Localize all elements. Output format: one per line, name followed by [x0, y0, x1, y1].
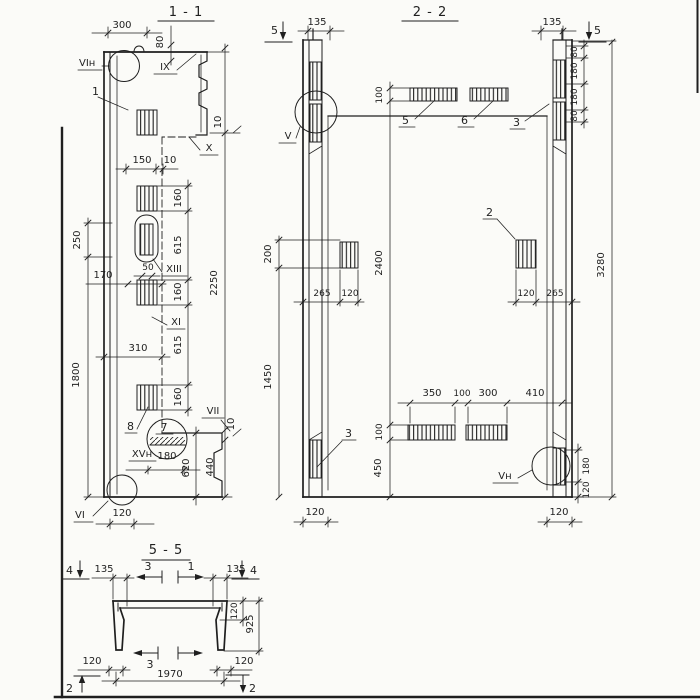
marker-ix: IX — [160, 62, 170, 73]
dim-120-flange: 120 — [230, 602, 240, 619]
dim-120-bottom-right: 120 — [234, 656, 253, 667]
part-label-7: 7 — [161, 421, 168, 434]
keyed-edge-top — [196, 52, 207, 135]
marker-x: X — [206, 143, 213, 154]
dim-265-right: 265 — [546, 289, 563, 299]
dim-120-left: 120 — [341, 289, 358, 299]
marker-xi: XI — [171, 317, 181, 328]
dim-120-right: 120 — [517, 289, 534, 299]
lifting-slot-insert — [140, 224, 153, 255]
cut-marker-4-right: 4 — [250, 564, 257, 577]
dim-10-mid: 10 — [164, 155, 177, 166]
part-label-8: 8 — [127, 420, 134, 433]
dim-615-a: 615 — [173, 235, 184, 254]
rebar-bar-6 — [470, 88, 508, 101]
marker-v: V — [285, 131, 292, 142]
dim-265-left: 265 — [313, 289, 330, 299]
rebar-bar — [408, 425, 455, 440]
section-title-2-2: 2 - 2 — [413, 5, 448, 20]
marker-vn: Vн — [498, 471, 511, 482]
dim-135-top-left: 135 — [94, 564, 113, 575]
rebar-bar — [466, 425, 507, 440]
dim-180-right: 180 — [582, 457, 592, 474]
rebar-plate — [310, 62, 322, 100]
channel-outline-5-5 — [113, 601, 227, 650]
dim-100-mid: 100 — [453, 389, 470, 399]
cut-marker-5-right: 5 — [594, 24, 601, 37]
dim-300: 300 — [112, 20, 131, 31]
dim-1970: 1970 — [157, 669, 182, 680]
dim-925: 925 — [245, 614, 256, 633]
dim-100-top: 100 — [375, 86, 385, 103]
cut-marker-5-left: 5 — [271, 24, 278, 37]
dim-450: 450 — [373, 458, 384, 477]
embed-plates-2-2 — [310, 60, 565, 485]
rebar-marker-1-top: 1 — [188, 560, 195, 573]
dim-50: 50 — [142, 263, 154, 273]
part-label-3-bottom: 3 — [345, 427, 352, 440]
rebar-plate — [137, 385, 157, 410]
marker-vi-top: VIн — [79, 58, 95, 69]
dim-180: 180 — [157, 451, 176, 462]
section-1-1: 1 - 1 300 — [71, 5, 241, 529]
section-2-2: 2 - 2 — [263, 5, 616, 527]
detail-circle-vi-bottom — [107, 475, 137, 505]
dim-120-bottom-right: 120 — [549, 507, 568, 518]
rebar-bar-5 — [410, 88, 457, 101]
dim-10-step: 10 — [213, 116, 224, 129]
detail-circle-vi-top — [109, 51, 140, 82]
dim-300: 300 — [478, 388, 497, 399]
dim-200: 200 — [263, 244, 274, 263]
cut-marker-4-left: 4 — [66, 564, 73, 577]
rebar-plate — [553, 102, 565, 140]
section-title-5-5: 5 - 5 — [149, 543, 184, 558]
rebar-plate — [553, 60, 565, 98]
marker-vi-bottom: VI — [75, 510, 85, 521]
dim-80-a: 80 — [570, 46, 580, 58]
dim-160-a: 160 — [173, 188, 184, 207]
dim-170: 170 — [93, 270, 112, 281]
marker-xiii: XIII — [166, 264, 182, 275]
part-label-1: 1 — [92, 85, 99, 98]
dim-120-right-rib: 120 — [582, 481, 592, 498]
dim-120-bottom-left: 120 — [305, 507, 324, 518]
rebar-plate — [310, 440, 322, 478]
dim-410: 410 — [525, 388, 544, 399]
rebar-plate — [310, 104, 322, 142]
rebar-plate-2 — [516, 240, 536, 268]
dim-160-c: 160 — [173, 387, 184, 406]
dim-1450: 1450 — [263, 364, 274, 389]
marker-xv: XVн — [132, 449, 152, 460]
rebar-marker-3-bottom: 3 — [147, 658, 154, 671]
rebar-plate — [137, 186, 157, 211]
section-title-1-1: 1 - 1 — [169, 5, 204, 20]
dim-350: 350 — [422, 388, 441, 399]
cut-marker-2-right: 2 — [249, 682, 256, 695]
dim-80: 80 — [155, 36, 166, 49]
rebar-marker-3-top: 3 — [145, 560, 152, 573]
part-label-3-top: 3 — [513, 116, 520, 129]
dimensions-5-5: 4 135 3 1 135 4 120 925 120 — [62, 560, 263, 695]
dim-100-bottom: 100 — [375, 423, 385, 440]
part-label-5: 5 — [402, 114, 409, 127]
weld-hatch — [150, 437, 185, 445]
section-5-5: 5 - 5 4 135 3 1 135 4 — [62, 543, 263, 695]
dim-120: 120 — [112, 508, 131, 519]
dim-1800: 1800 — [71, 362, 82, 387]
dim-120-bottom-left: 120 — [82, 656, 101, 667]
dim-180-a: 180 — [570, 62, 580, 79]
part-label-6: 6 — [461, 114, 468, 127]
dim-160-b: 160 — [173, 282, 184, 301]
rebar-plate — [553, 448, 565, 485]
part-label-2: 2 — [486, 206, 493, 219]
drawing-sheet: 1 - 1 300 — [0, 0, 700, 700]
rebar-plate — [340, 242, 358, 268]
dim-310: 310 — [128, 343, 147, 354]
dim-150: 150 — [132, 155, 151, 166]
dim-135-left: 135 — [307, 17, 326, 28]
marker-vii: VII — [207, 406, 220, 417]
dim-135-right: 135 — [542, 17, 561, 28]
dim-250: 250 — [72, 230, 83, 249]
dim-615-b: 615 — [173, 335, 184, 354]
lifting-loop — [134, 46, 144, 52]
dim-3280: 3280 — [596, 252, 607, 277]
rebar-plate — [137, 110, 157, 135]
dim-80-b: 80 — [570, 110, 580, 122]
dim-2250: 2250 — [209, 270, 220, 295]
dim-2400: 2400 — [374, 250, 385, 275]
dim-440: 440 — [205, 457, 216, 476]
drawing-canvas: 1 - 1 300 — [0, 0, 700, 700]
dim-180-b: 180 — [570, 88, 580, 105]
cut-marker-2-left: 2 — [66, 682, 73, 695]
